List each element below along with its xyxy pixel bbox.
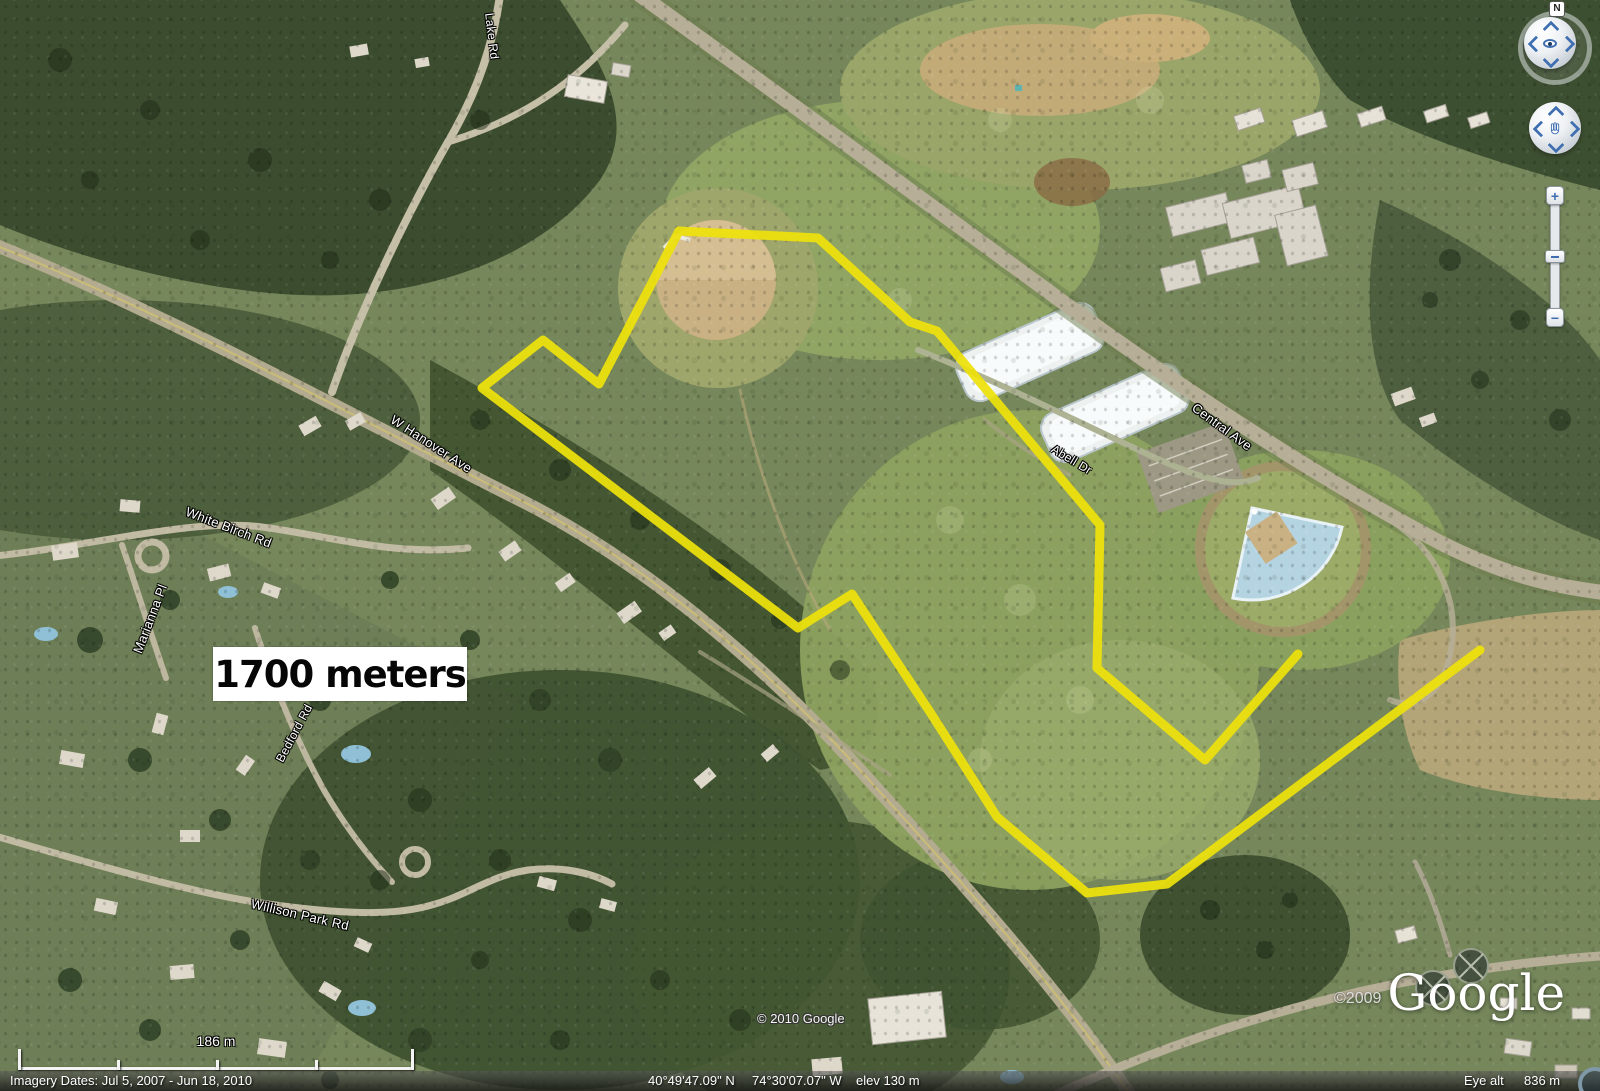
- scale-tick: [216, 1060, 219, 1070]
- zoom-slider-handle[interactable]: [1545, 250, 1565, 263]
- pan-down-arrow-icon[interactable]: [1548, 137, 1565, 154]
- logo-copyright-year: ©2009: [1334, 990, 1381, 1008]
- navigation-controls: N + −: [1510, 0, 1600, 340]
- status-bar: Imagery Dates: Jul 5, 2007 - Jun 18, 201…: [0, 1071, 1600, 1091]
- pan-right-arrow-icon[interactable]: [1564, 121, 1581, 138]
- zoom-in-button[interactable]: +: [1546, 186, 1564, 205]
- map-copyright: © 2010 Google: [757, 1011, 845, 1026]
- imagery-dates: Imagery Dates: Jul 5, 2007 - Jun 18, 201…: [10, 1073, 252, 1088]
- scale-tick: [315, 1060, 318, 1070]
- google-branding: ©2009 Google: [1334, 968, 1565, 1018]
- look-down-arrow-icon[interactable]: [1543, 52, 1560, 69]
- eye-altitude-value: 836 m: [1524, 1073, 1560, 1088]
- look-right-arrow-icon[interactable]: [1559, 36, 1576, 53]
- zoom-out-button[interactable]: −: [1546, 308, 1564, 327]
- scale-tick: [117, 1060, 120, 1070]
- satellite-imagery[interactable]: [0, 0, 1600, 1091]
- eye-altitude-label: Eye alt: [1464, 1073, 1504, 1088]
- google-logo: Google: [1387, 968, 1565, 1018]
- streaming-progress-icon: [1578, 1067, 1600, 1091]
- distance-annotation-text: 1700 meters: [214, 653, 466, 696]
- look-up-arrow-icon[interactable]: [1543, 21, 1560, 38]
- scale-bar: 186 m: [18, 1048, 414, 1070]
- scale-tick: [411, 1049, 414, 1070]
- distance-annotation: 1700 meters: [213, 647, 467, 701]
- pointer-elevation: elev 130 m: [856, 1073, 920, 1088]
- pan-hand-icon: [1547, 120, 1563, 136]
- scale-tick: [18, 1049, 21, 1070]
- look-joystick[interactable]: [1524, 17, 1576, 69]
- look-eye-icon: [1543, 39, 1557, 48]
- pointer-latitude: 40°49'47.09" N: [648, 1073, 735, 1088]
- google-earth-viewport[interactable]: Lake Rd W Hanover Ave White Birch Rd Mar…: [0, 0, 1600, 1091]
- pointer-longitude: 74°30'07.07" W: [752, 1073, 842, 1088]
- pan-joystick[interactable]: [1529, 102, 1581, 154]
- north-button[interactable]: N: [1549, 1, 1565, 17]
- scale-bar-label: 186 m: [197, 1033, 236, 1049]
- look-left-arrow-icon[interactable]: [1528, 36, 1545, 53]
